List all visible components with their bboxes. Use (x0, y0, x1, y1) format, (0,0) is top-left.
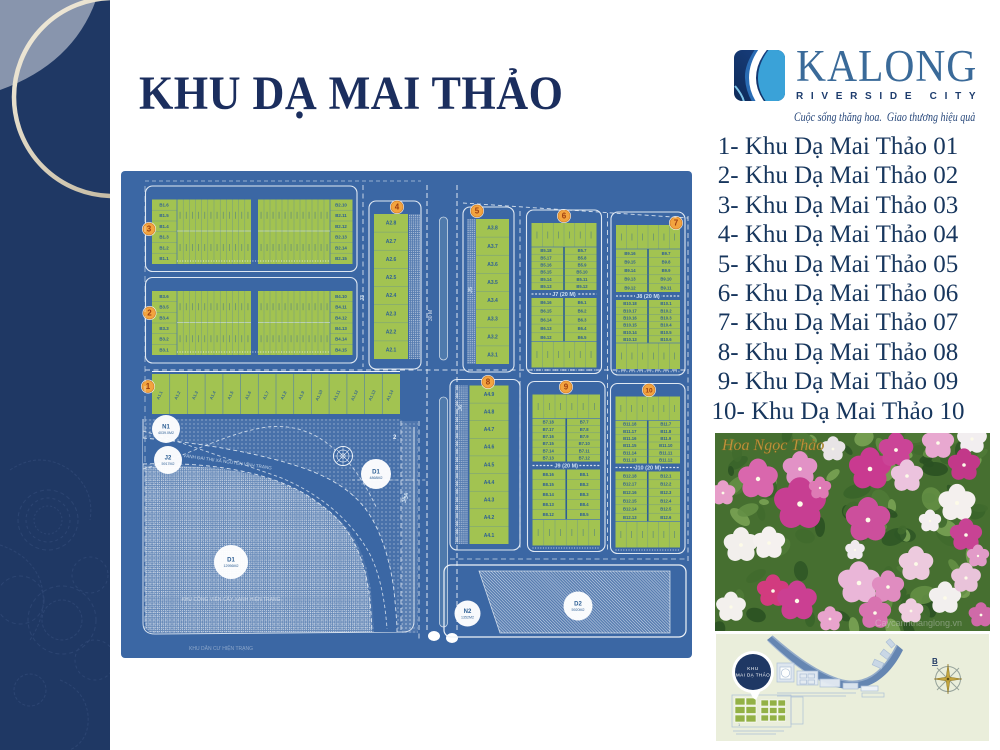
svg-text:B11.16: B11.16 (623, 436, 637, 441)
svg-text:B2.13: B2.13 (335, 235, 347, 240)
svg-text:B6.12: B6.12 (540, 335, 552, 340)
svg-text:1: 1 (146, 382, 151, 391)
svg-text:B10.6: B10.6 (660, 337, 672, 342)
svg-text:B6.16: B6.16 (540, 300, 552, 305)
svg-text:B8.1: B8.1 (580, 472, 590, 477)
svg-text:B6.13: B6.13 (540, 326, 552, 331)
svg-text:A2.6: A2.6 (386, 257, 397, 263)
svg-text:B9.12: B9.12 (624, 285, 636, 290)
svg-text:B5.13: B5.13 (540, 284, 552, 289)
svg-text:B7.17: B7.17 (543, 427, 555, 432)
svg-text:B8.13: B8.13 (543, 502, 555, 507)
svg-text:J3: J3 (360, 295, 366, 301)
svg-text:A4.6: A4.6 (484, 445, 495, 451)
svg-text:B5.7: B5.7 (578, 248, 588, 253)
svg-text:7: 7 (674, 219, 679, 228)
svg-text:B12.18: B12.18 (623, 473, 637, 478)
svg-text:B9.13: B9.13 (624, 277, 636, 282)
svg-text:Hoa Ngọc Thảo: Hoa Ngọc Thảo (721, 437, 824, 454)
svg-text:KHU: KHU (747, 666, 759, 671)
svg-text:B4.13: B4.13 (335, 326, 347, 331)
svg-text:B9.16: B9.16 (624, 251, 636, 256)
svg-text:B1.3: B1.3 (159, 235, 169, 240)
svg-text:8: 8 (486, 378, 491, 387)
svg-text:B10.17: B10.17 (623, 308, 637, 313)
svg-text:B7.11: B7.11 (579, 448, 591, 453)
svg-text:B6.3: B6.3 (578, 317, 588, 322)
svg-text:A2.7: A2.7 (386, 239, 397, 245)
svg-text:3: 3 (147, 225, 152, 234)
svg-text:B7.16: B7.16 (543, 434, 555, 439)
svg-text:B11.18: B11.18 (623, 422, 637, 427)
svg-text:B6.4: B6.4 (578, 326, 588, 331)
svg-text:B1.5: B1.5 (159, 213, 169, 218)
svg-text:A3.7: A3.7 (487, 244, 498, 250)
svg-text:J6: J6 (458, 405, 464, 411)
svg-text:4039.0M2: 4039.0M2 (158, 431, 174, 435)
svg-text:B10.15: B10.15 (623, 323, 637, 328)
svg-text:10: 10 (645, 388, 653, 395)
svg-text:J9 (20 M): J9 (20 M) (554, 464, 578, 470)
svg-text:B10.3: B10.3 (660, 316, 672, 321)
svg-text:B12.14: B12.14 (623, 507, 637, 512)
svg-text:B4.15: B4.15 (335, 347, 347, 352)
svg-text:J8 (20 M): J8 (20 M) (636, 294, 660, 300)
svg-text:B10.1: B10.1 (660, 301, 672, 306)
svg-text:6: 6 (562, 212, 567, 221)
svg-text:12956M2: 12956M2 (224, 564, 239, 568)
svg-text:B7.13: B7.13 (543, 456, 555, 461)
svg-text:5920M2: 5920M2 (572, 608, 585, 612)
svg-text:B7.12: B7.12 (579, 456, 591, 461)
svg-text:B12.16: B12.16 (623, 490, 637, 495)
svg-text:B9.8: B9.8 (662, 260, 672, 265)
svg-text:A3.4: A3.4 (487, 298, 498, 304)
svg-text:A4.5: A4.5 (484, 462, 495, 468)
svg-text:30 M: 30 M (428, 310, 434, 321)
svg-text:B10.13: B10.13 (623, 337, 637, 342)
svg-text:B2.10: B2.10 (335, 203, 347, 208)
svg-text:J2: J2 (165, 456, 172, 462)
svg-text:B8.4: B8.4 (580, 502, 590, 507)
svg-text:B5.12: B5.12 (576, 284, 588, 289)
svg-text:5: 5 (475, 207, 480, 216)
svg-text:B7.10: B7.10 (579, 441, 591, 446)
svg-text:B: B (932, 657, 938, 666)
svg-text:B8.3: B8.3 (580, 492, 590, 497)
svg-text:B2.15: B2.15 (335, 256, 347, 261)
svg-text:B11.9: B11.9 (660, 436, 672, 441)
svg-text:B11.10: B11.10 (659, 443, 673, 448)
svg-text:B3.3: B3.3 (159, 326, 169, 331)
svg-text:KHU CÔNG VIÊN CÂY XANH HIỆN TR: KHU CÔNG VIÊN CÂY XANH HIỆN TRẠNG (182, 595, 281, 603)
svg-text:B11.13: B11.13 (623, 458, 637, 463)
svg-text:B11.7: B11.7 (660, 422, 672, 427)
svg-text:N2: N2 (464, 609, 472, 615)
svg-text:MAI DẠ THẢO: MAI DẠ THẢO (736, 672, 770, 678)
svg-text:B6.2: B6.2 (578, 309, 588, 314)
svg-text:A4.2: A4.2 (484, 515, 495, 521)
svg-text:D1: D1 (372, 470, 380, 476)
svg-text:4868M2: 4868M2 (370, 476, 383, 480)
svg-text:N1: N1 (162, 425, 170, 431)
svg-text:B10.5: B10.5 (660, 330, 672, 335)
svg-text:A4.8: A4.8 (484, 410, 495, 416)
svg-text:B7.7: B7.7 (580, 420, 590, 425)
svg-text:B7.18: B7.18 (543, 420, 555, 425)
svg-text:A2.4: A2.4 (386, 293, 397, 299)
svg-text:B5.14: B5.14 (540, 277, 552, 282)
svg-text:B8.12: B8.12 (543, 512, 555, 517)
svg-text:B12.13: B12.13 (623, 515, 637, 520)
svg-text:B12.17: B12.17 (623, 482, 637, 487)
svg-text:B2.12: B2.12 (335, 224, 347, 229)
svg-text:B12.3: B12.3 (660, 490, 672, 495)
svg-text:B5.16: B5.16 (540, 263, 552, 268)
svg-text:9: 9 (564, 383, 569, 392)
svg-text:B7.8: B7.8 (580, 427, 590, 432)
svg-text:B5.10: B5.10 (576, 270, 588, 275)
svg-text:J5: J5 (468, 287, 474, 293)
svg-text:B3.2: B3.2 (159, 337, 169, 342)
svg-text:J4: J4 (404, 492, 410, 499)
svg-text:B5.9: B5.9 (578, 263, 588, 268)
svg-text:5917M2: 5917M2 (162, 462, 175, 466)
svg-text:B11.8: B11.8 (660, 429, 672, 434)
svg-text:B10.2: B10.2 (660, 308, 672, 313)
svg-text:B4.11: B4.11 (335, 305, 347, 310)
svg-text:B5.15: B5.15 (540, 270, 552, 275)
svg-text:A4.3: A4.3 (484, 498, 495, 504)
svg-text:B4.12: B4.12 (335, 315, 347, 320)
svg-text:B9.7: B9.7 (662, 251, 672, 256)
svg-text:B10.14: B10.14 (623, 330, 637, 335)
svg-text:B12.4: B12.4 (660, 498, 672, 503)
svg-text:A4.7: A4.7 (484, 427, 495, 433)
svg-text:J10 (20 M): J10 (20 M) (634, 466, 661, 472)
svg-text:D2: D2 (574, 602, 582, 608)
svg-text:B11.15: B11.15 (623, 443, 637, 448)
svg-text:B10.4: B10.4 (660, 323, 672, 328)
svg-text:A3.2: A3.2 (487, 334, 498, 340)
svg-text:A2.8: A2.8 (386, 221, 397, 227)
svg-text:Caycanhthanglong.vn: Caycanhthanglong.vn (875, 618, 962, 628)
svg-text:B11.17: B11.17 (623, 429, 637, 434)
svg-text:B7.9: B7.9 (580, 434, 590, 439)
svg-text:B1.1: B1.1 (159, 256, 169, 261)
svg-text:B9.11: B9.11 (661, 285, 673, 290)
svg-text:B11.11: B11.11 (659, 450, 673, 455)
svg-text:A2.3: A2.3 (386, 311, 397, 317)
svg-text:B7.15: B7.15 (543, 441, 555, 446)
svg-text:B3.5: B3.5 (159, 305, 169, 310)
svg-text:J7 (20 M): J7 (20 M) (552, 292, 576, 298)
svg-text:A3.8: A3.8 (487, 226, 498, 232)
svg-text:A3.3: A3.3 (487, 316, 498, 322)
svg-text:B1.2: B1.2 (159, 246, 169, 251)
svg-text:B1.4: B1.4 (159, 224, 169, 229)
svg-text:B6.5: B6.5 (578, 335, 588, 340)
svg-text:B6.14: B6.14 (540, 317, 552, 322)
svg-text:KHU DÂN CƯ HIỆN TRẠNG: KHU DÂN CƯ HIỆN TRẠNG (189, 644, 253, 652)
svg-text:A2.1: A2.1 (386, 348, 397, 354)
svg-text:B9.14: B9.14 (624, 268, 636, 273)
svg-text:B5.18: B5.18 (540, 248, 552, 253)
svg-text:B12.15: B12.15 (623, 498, 637, 503)
svg-text:B3.1: B3.1 (159, 347, 169, 352)
svg-text:B10.18: B10.18 (623, 301, 637, 306)
svg-text:B8.2: B8.2 (580, 482, 590, 487)
svg-text:B8.14: B8.14 (543, 492, 555, 497)
svg-text:B1.6: B1.6 (159, 203, 169, 208)
svg-text:B11.14: B11.14 (623, 450, 637, 455)
svg-text:B4.10: B4.10 (335, 294, 347, 299)
svg-text:B9.15: B9.15 (624, 260, 636, 265)
svg-text:B5.8: B5.8 (578, 255, 588, 260)
svg-text:A3.5: A3.5 (487, 280, 498, 286)
svg-text:A4.1: A4.1 (484, 533, 495, 539)
svg-text:B10.16: B10.16 (623, 316, 637, 321)
svg-text:B9.10: B9.10 (660, 277, 672, 282)
svg-text:B8.16: B8.16 (543, 472, 555, 477)
svg-text:B12.1: B12.1 (660, 473, 672, 478)
svg-text:1352M2: 1352M2 (461, 616, 474, 620)
svg-text:B9.9: B9.9 (662, 268, 672, 273)
svg-text:B8.15: B8.15 (543, 482, 555, 487)
svg-text:B2.14: B2.14 (335, 246, 347, 251)
svg-text:B6.15: B6.15 (540, 309, 552, 314)
svg-text:B3.6: B3.6 (159, 294, 169, 299)
svg-text:B4.14: B4.14 (335, 337, 347, 342)
svg-text:B12.5: B12.5 (660, 507, 672, 512)
svg-text:B6.1: B6.1 (578, 300, 588, 305)
svg-text:A2.5: A2.5 (386, 275, 397, 281)
svg-text:B12.6: B12.6 (660, 515, 672, 520)
svg-text:B2.11: B2.11 (335, 213, 347, 218)
svg-text:B5.11: B5.11 (577, 277, 589, 282)
svg-text:B5.17: B5.17 (540, 255, 552, 260)
svg-text:B12.2: B12.2 (660, 482, 672, 487)
svg-text:B3.4: B3.4 (159, 315, 169, 320)
svg-text:4: 4 (395, 203, 400, 212)
svg-text:A4.9: A4.9 (484, 392, 495, 398)
svg-text:2: 2 (147, 309, 152, 318)
svg-text:B7.14: B7.14 (543, 448, 555, 453)
svg-text:A3.1: A3.1 (487, 353, 498, 359)
svg-text:A4.4: A4.4 (484, 480, 495, 486)
svg-text:D1: D1 (227, 558, 235, 564)
svg-text:A3.6: A3.6 (487, 262, 498, 268)
svg-text:B11.12: B11.12 (659, 458, 673, 463)
svg-text:B8.5: B8.5 (580, 512, 590, 517)
svg-text:A2.2: A2.2 (386, 329, 397, 335)
